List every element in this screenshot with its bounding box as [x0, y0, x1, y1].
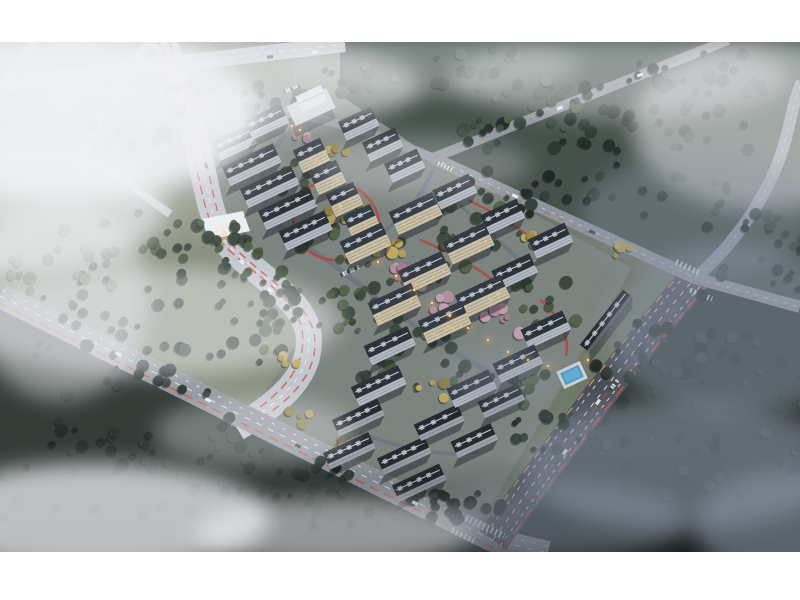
top-white-margin	[0, 0, 800, 42]
fog-patch	[155, 397, 355, 467]
fog-patch	[440, 345, 560, 405]
fog-patch	[310, 135, 530, 195]
path-light	[446, 312, 455, 321]
fog-patch	[445, 482, 685, 558]
aerial-rendering	[0, 0, 800, 600]
path-light	[484, 336, 493, 345]
bottom-white-margin	[0, 552, 800, 600]
path-light	[584, 356, 593, 365]
path-light	[464, 324, 473, 333]
rendering-frame	[0, 0, 800, 600]
